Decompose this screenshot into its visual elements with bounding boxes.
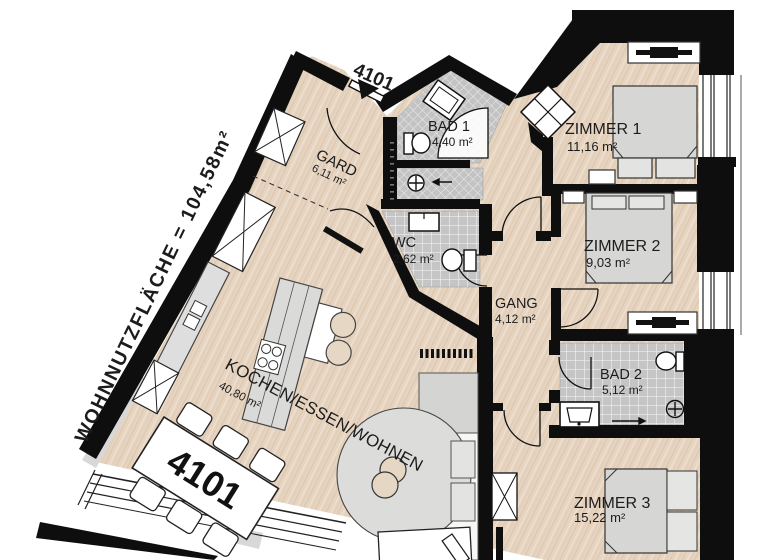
svg-text:GANG: GANG — [495, 296, 538, 312]
svg-text:BAD 2: BAD 2 — [600, 367, 642, 383]
svg-text:4,40 m²: 4,40 m² — [432, 135, 473, 149]
svg-text:2,62 m²: 2,62 m² — [393, 252, 434, 266]
svg-text:WC: WC — [392, 235, 416, 251]
svg-text:ZIMMER 1: ZIMMER 1 — [565, 121, 642, 138]
svg-text:15,22 m²: 15,22 m² — [574, 510, 626, 525]
svg-text:BAD 1: BAD 1 — [428, 119, 470, 135]
svg-text:9,03 m²: 9,03 m² — [586, 255, 631, 270]
svg-text:5,12 m²: 5,12 m² — [602, 383, 643, 397]
svg-text:11,16 m²: 11,16 m² — [567, 139, 618, 154]
svg-text:ZIMMER 2: ZIMMER 2 — [584, 238, 661, 255]
svg-text:4,12 m²: 4,12 m² — [495, 312, 536, 326]
